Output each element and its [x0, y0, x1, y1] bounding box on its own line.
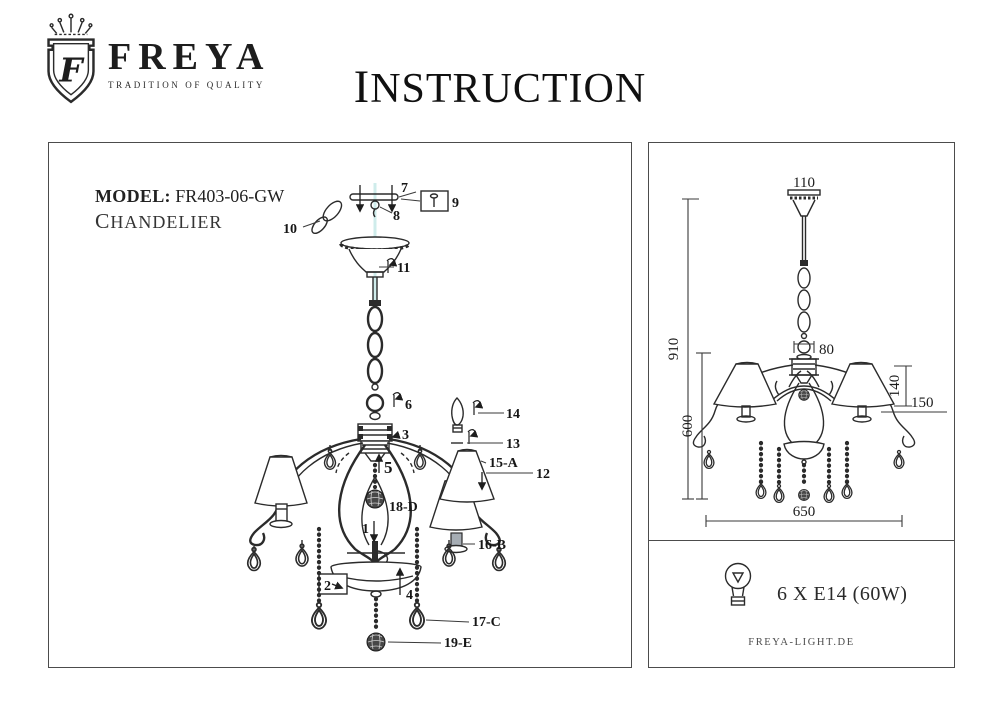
brand-monogram: F — [58, 50, 85, 89]
dim-canopy-diameter: 110 — [793, 175, 815, 191]
dim-overall-height: 910 — [666, 338, 682, 361]
page-title: INSTRUCTION — [250, 60, 750, 113]
dim-body-height: 600 — [680, 415, 696, 438]
dim-hub-width: 80 — [819, 342, 834, 358]
dim-overall-diameter: 650 — [793, 504, 816, 520]
crown-icon — [50, 14, 92, 34]
dimension-diagram: 110 910 600 80 140 150 650 — [649, 143, 954, 540]
dim-canopy — [788, 190, 820, 216]
dim-bowl-chains — [704, 442, 904, 503]
freya-logo: F — [36, 12, 106, 108]
leader-10 — [303, 221, 320, 227]
suspension-chain — [367, 277, 400, 411]
exploded-diagram: 7 9 8 10 11 6 3 5 14 13 15-A 12 18-D 1 1… — [49, 143, 631, 667]
part-label-4: 4 — [406, 588, 413, 603]
part-label-17c: 17-C — [472, 615, 501, 630]
part-label-7: 7 — [401, 181, 408, 196]
part-label-11: 11 — [397, 261, 410, 276]
part-label-8: 8 — [393, 209, 400, 224]
part-label-12: 12 — [536, 467, 550, 482]
dim-shade-diameter: 150 — [911, 395, 934, 411]
part-label-2: 2 — [324, 579, 331, 594]
part-label-15a: 15-A — [489, 456, 519, 471]
instruction-sheet: F FREYA TRADITION OF QUALITY INSTRUCTION… — [0, 0, 1000, 706]
part-label-3: 3 — [402, 428, 409, 443]
central-hub — [358, 413, 399, 474]
part-label-14: 14 — [506, 407, 520, 422]
part-label-13: 13 — [506, 437, 520, 452]
carabiner-hook — [308, 198, 344, 236]
ceiling-bracket — [350, 185, 420, 211]
dimension-labels: 110 910 600 80 140 150 650 — [666, 175, 934, 520]
bulb-icon — [721, 561, 755, 613]
part-label-16b: 16-B — [478, 538, 506, 553]
spare-shade-15a — [440, 450, 533, 503]
part-label-18d: 18-D — [389, 500, 418, 515]
part-label-5: 5 — [384, 458, 393, 477]
website-label: FREYA-LIGHT.DE — [649, 637, 954, 648]
part-label-1: 1 — [362, 522, 369, 537]
part-label-10: 10 — [283, 222, 297, 237]
part-label-9: 9 — [452, 196, 459, 211]
candle-bulb-14 — [452, 398, 504, 432]
part-label-19e: 19-E — [444, 636, 472, 651]
part-label-6: 6 — [405, 398, 412, 413]
bulb-spec: 6 X E14 (60W) — [777, 583, 907, 606]
dimensions-panel: 110 910 600 80 140 150 650 6 X E14 (60W)… — [648, 142, 955, 668]
dim-chain — [798, 216, 810, 353]
spec-section: 6 X E14 (60W) FREYA-LIGHT.DE — [649, 541, 954, 667]
screw-box — [421, 191, 448, 211]
assembly-panel: MODEL: FR403-06-GW CHANDELIER — [48, 142, 632, 668]
dim-shade-height: 140 — [887, 375, 903, 398]
